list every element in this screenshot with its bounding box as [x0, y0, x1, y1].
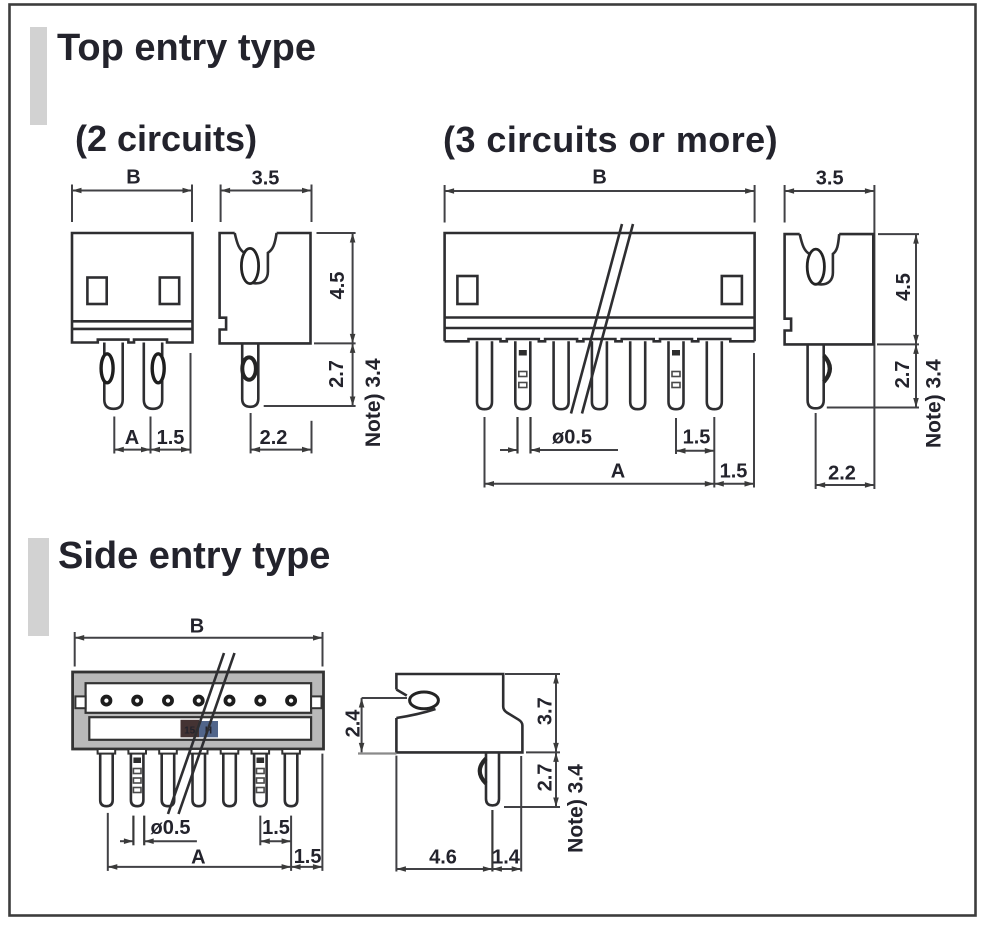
svg-text:2.7: 2.7	[892, 361, 914, 389]
svg-text:1.5: 1.5	[294, 846, 322, 868]
svg-text:Note) 3.4: Note) 3.4	[362, 358, 385, 447]
svg-text:3.7: 3.7	[535, 697, 557, 725]
svg-text:1.5: 1.5	[157, 427, 185, 449]
svg-text:A: A	[611, 461, 625, 483]
svg-text:3.5: 3.5	[252, 168, 280, 190]
svg-text:B: B	[126, 167, 140, 189]
svg-text:15: 15	[184, 726, 196, 737]
svg-text:(2 circuits): (2 circuits)	[75, 118, 257, 159]
svg-text:1.5: 1.5	[683, 426, 711, 448]
svg-text:2.7: 2.7	[535, 764, 557, 792]
svg-text:1.4: 1.4	[492, 847, 521, 869]
svg-text:B: B	[592, 167, 606, 189]
svg-text:2.7: 2.7	[326, 360, 348, 388]
svg-text:4.5: 4.5	[327, 272, 349, 300]
svg-text:B: B	[190, 616, 204, 638]
svg-text:Top entry type: Top entry type	[57, 27, 316, 69]
svg-text:2.4: 2.4	[343, 709, 365, 738]
svg-text:3.5: 3.5	[816, 168, 844, 190]
svg-text:A: A	[125, 427, 139, 449]
svg-text:Side entry type: Side entry type	[58, 535, 330, 577]
svg-text:4.5: 4.5	[893, 273, 915, 301]
svg-text:1.5: 1.5	[720, 461, 748, 483]
svg-text:4.6: 4.6	[429, 847, 457, 869]
svg-text:ø0.5: ø0.5	[552, 427, 592, 449]
svg-text:1.5: 1.5	[262, 817, 290, 839]
svg-text:A: A	[191, 847, 205, 869]
svg-text:2.2: 2.2	[828, 463, 856, 485]
svg-text:(3 circuits or more): (3 circuits or more)	[443, 119, 778, 160]
svg-text:2.2: 2.2	[260, 427, 288, 449]
svg-text:Note) 3.4: Note) 3.4	[923, 359, 946, 448]
svg-text:ø0.5: ø0.5	[150, 817, 190, 839]
svg-text:Note) 3.4: Note) 3.4	[565, 764, 588, 853]
